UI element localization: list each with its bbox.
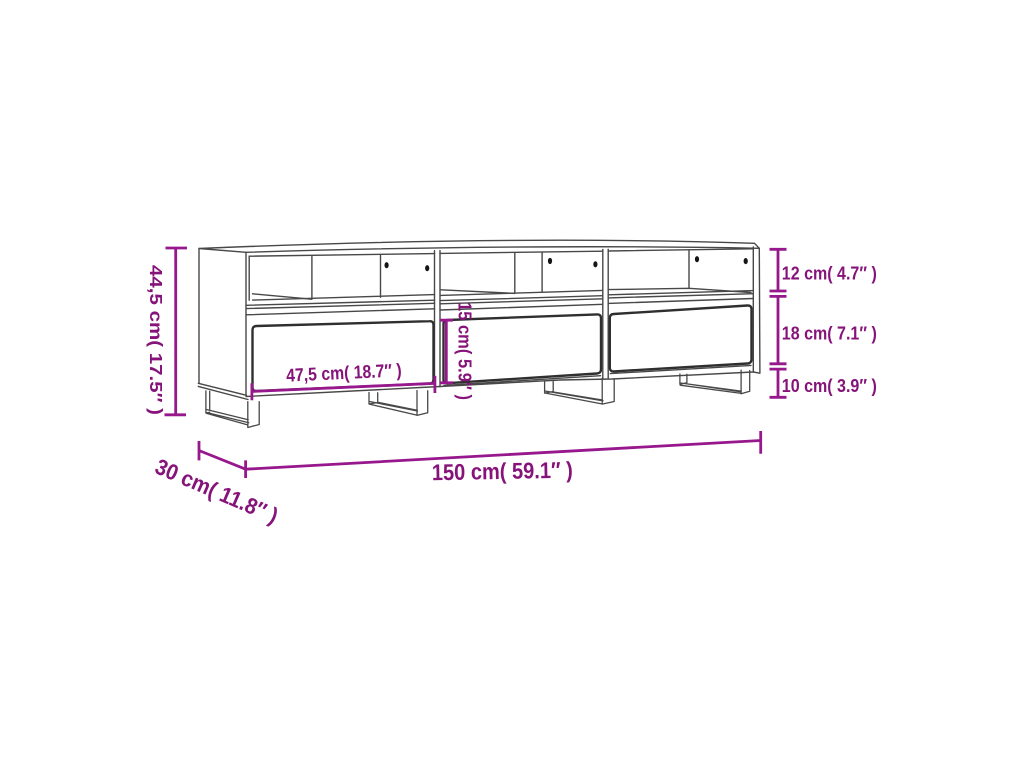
svg-text:18 cm( 7.1″ ): 18 cm( 7.1″ ): [782, 322, 877, 343]
svg-text:12 cm( 4.7″ ): 12 cm( 4.7″ ): [782, 263, 877, 284]
svg-text:150 cm( 59.1″ ): 150 cm( 59.1″ ): [432, 457, 573, 486]
svg-text:44,5 cm( 17.5″ ): 44,5 cm( 17.5″ ): [146, 265, 166, 415]
svg-text:10 cm( 3.9″ ): 10 cm( 3.9″ ): [782, 375, 877, 396]
svg-text:15 cm( 5.9″ ): 15 cm( 5.9″ ): [455, 302, 475, 400]
